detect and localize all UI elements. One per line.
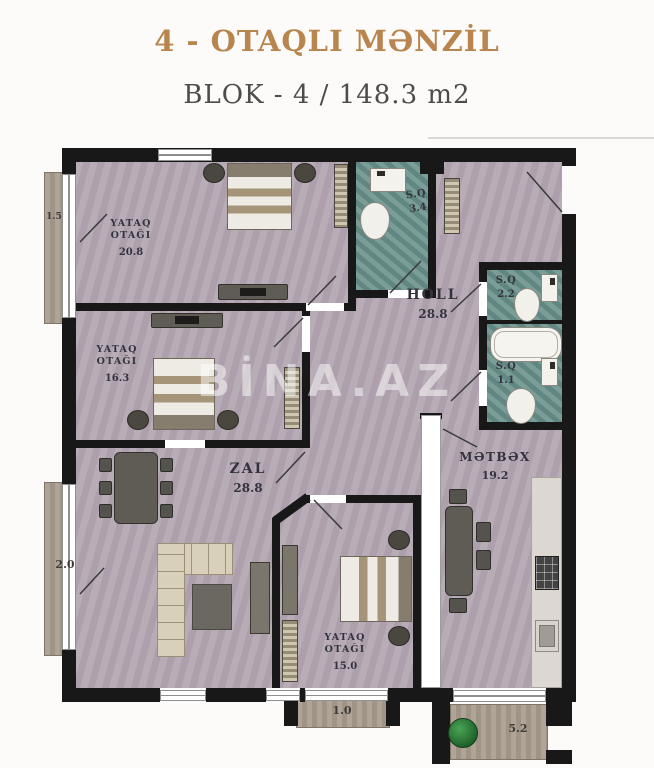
window-balcony-top-left [62,174,76,318]
kitchen-chair-bottom [449,598,467,613]
kitchen-chair-top [449,489,467,504]
wc-upper-sink [541,274,558,302]
wall-bedroom3-left [272,518,280,688]
bedroom3-label: YATAQ OTAĞI 15.0 [314,632,376,673]
wc-upper-tap [550,278,555,285]
bedroom2-wardrobe [284,367,300,429]
sofa-left-section [157,543,185,657]
bedroom1-area: 20.8 [96,246,166,259]
plant [448,718,478,748]
bedroom3-name-line1: YATAQ [314,632,376,644]
balcony-top-left-dim: 1.5 [42,212,66,222]
living-room-label: ZAL 28.8 [220,460,276,497]
duct-shaft [421,415,441,688]
stove [535,556,559,590]
hall-shoe-cabinet [444,178,460,234]
bedroom1-bed [227,163,292,230]
bedroom2-label: YATAQ OTAĞI 16.3 [86,344,148,385]
bathtub-inner [494,331,558,358]
bedroom2-nightstand-left [127,410,149,430]
balcony-bottom-center-dim: 1.0 [322,704,362,717]
living-room-name: ZAL [220,460,276,478]
bedroom2-name-line2: OTAĞI [86,356,148,368]
bedroom3-nightstand-top [388,530,410,550]
bedroom3-wardrobe [282,620,298,682]
bedroom1-nightstand-left [203,163,225,183]
wall-bedroom1-right [348,162,356,303]
door-gap-wc-lower [479,370,487,406]
bathroom-top-sink [370,168,406,192]
bedroom1-label: YATAQ OTAĞI 20.8 [96,218,166,259]
bathroom-top-tap [377,171,385,176]
tv-cabinet [250,562,270,634]
balcony-post-4 [546,700,572,726]
hall-label: HOLL 28.8 [404,286,462,323]
bedroom1-nightstand-right [294,163,316,183]
balcony-bottom-right-dim: 5.2 [500,722,536,735]
wc-lower-sink [541,358,558,386]
wall-right-2 [562,214,576,702]
kitchen-name: MƏTBƏX [455,450,535,466]
hall-name: HOLL [404,286,462,304]
bedroom1-dresser-detail [240,288,266,296]
bedroom3-bed [340,556,412,622]
kitchen-chair-right-2 [476,550,491,570]
page-subtitle: BLOK - 4 / 148.3 m2 [0,80,654,110]
wc-lower-label: S.Q 1.1 [487,360,525,387]
dining-table [114,452,158,524]
bedroom3-name-line2: OTAĞI [314,644,376,656]
dining-chair-1 [99,458,112,472]
kitchen-sink-basin [539,625,555,647]
bedroom1-name-line2: OTAĞI [96,230,166,242]
wall-bedroom3-right [413,503,421,688]
wall-wet-top [479,262,562,270]
wc-upper-area: 2.2 [487,288,525,301]
bedroom1-name-line1: YATAQ [96,218,166,230]
bedroom2-area: 16.3 [86,372,148,385]
balcony-mid-left-dim: 2.0 [50,558,80,571]
dining-chair-6 [160,504,173,518]
wall-bottom-2 [206,688,266,702]
dining-chair-2 [99,481,112,495]
bedroom3-area: 15.0 [314,660,376,673]
dining-chair-5 [160,481,173,495]
dining-chair-3 [99,504,112,518]
window-living-2 [266,690,300,701]
page-title: 4 - OTAQLI MƏNZİL [0,24,654,58]
dining-chair-4 [160,458,173,472]
living-room-area: 28.8 [220,481,276,497]
door-gap-bedroom1 [306,303,344,311]
door-kitchen-balcony [453,690,546,702]
door-gap-wc-upper [479,282,487,316]
bathtub [490,327,562,362]
coffee-table-rug [192,584,232,630]
kitchen-chair-right-1 [476,522,491,542]
bedroom2-nightstand-right [217,410,239,430]
bedroom2-dresser-detail [175,316,199,324]
wall-left-2 [62,316,76,486]
bedroom2-bed [153,358,215,430]
kitchen-area: 19.2 [455,469,535,483]
window-bedroom3-bottom [305,690,388,701]
wall-hall-pillar [420,162,444,174]
wc-upper-label: S.Q 2.2 [487,274,525,301]
kitchen-table [445,506,473,596]
wall-top [62,148,576,162]
floor-plan-page: 4 - OTAQLI MƏNZİL BLOK - 4 / 148.3 m2 [0,0,654,768]
kitchen-sink [535,620,559,652]
door-gap-bedroom3 [310,495,346,503]
bathroom-top-label: S.Q 3.4 [394,185,439,218]
kitchen-label: MƏTBƏX 19.2 [455,450,535,483]
wall-left-1 [62,148,76,176]
bedroom3-cabinet [282,545,298,615]
photo-edge-line [428,137,654,139]
window-bedroom1-top [158,149,212,161]
balcony-post-1 [284,700,298,726]
opening-bedroom2-living [165,440,205,448]
bedroom3-nightstand-bottom [388,626,410,646]
wc-lower-area: 1.1 [487,374,525,387]
wall-right-1 [562,148,576,166]
window-living-1 [160,690,206,701]
wc-lower-name: S.Q [487,360,525,373]
balcony-post-5 [546,750,572,764]
hall-area: 28.8 [404,307,462,323]
wc-lower-tap [550,362,555,369]
bedroom1-wardrobe [334,164,348,228]
door-gap-bedroom2 [302,316,310,352]
balcony-post-2 [386,700,400,726]
wall-bathroom-right [428,162,436,298]
bedroom2-name-line1: YATAQ [86,344,148,356]
wall-bottom-1 [62,688,160,702]
wc-upper-name: S.Q [487,274,525,287]
